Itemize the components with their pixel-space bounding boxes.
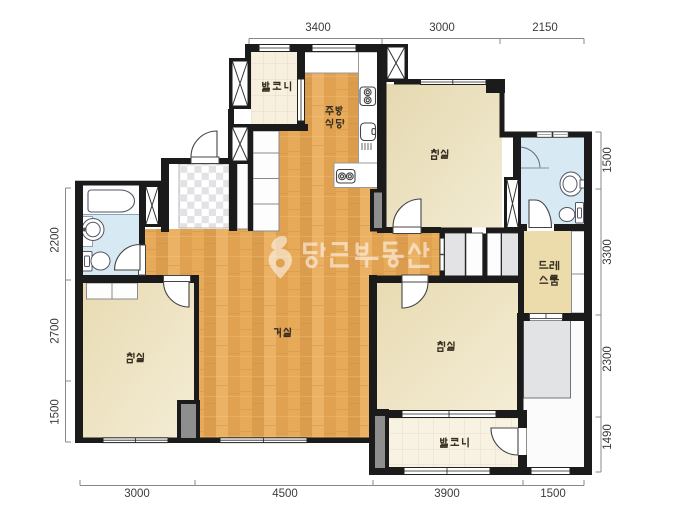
svg-text:2700: 2700: [50, 318, 62, 344]
svg-text:3300: 3300: [602, 239, 614, 265]
svg-text:4500: 4500: [272, 488, 298, 500]
svg-text:1500: 1500: [540, 488, 566, 500]
svg-text:1500: 1500: [50, 399, 62, 425]
svg-text:2300: 2300: [602, 346, 614, 372]
svg-text:1490: 1490: [602, 424, 614, 450]
svg-text:3900: 3900: [434, 488, 460, 500]
svg-text:3000: 3000: [429, 22, 455, 34]
svg-text:2150: 2150: [532, 22, 558, 34]
svg-text:3000: 3000: [124, 488, 150, 500]
svg-text:1500: 1500: [602, 147, 614, 173]
svg-text:2200: 2200: [50, 227, 62, 253]
svg-text:3400: 3400: [305, 22, 331, 34]
